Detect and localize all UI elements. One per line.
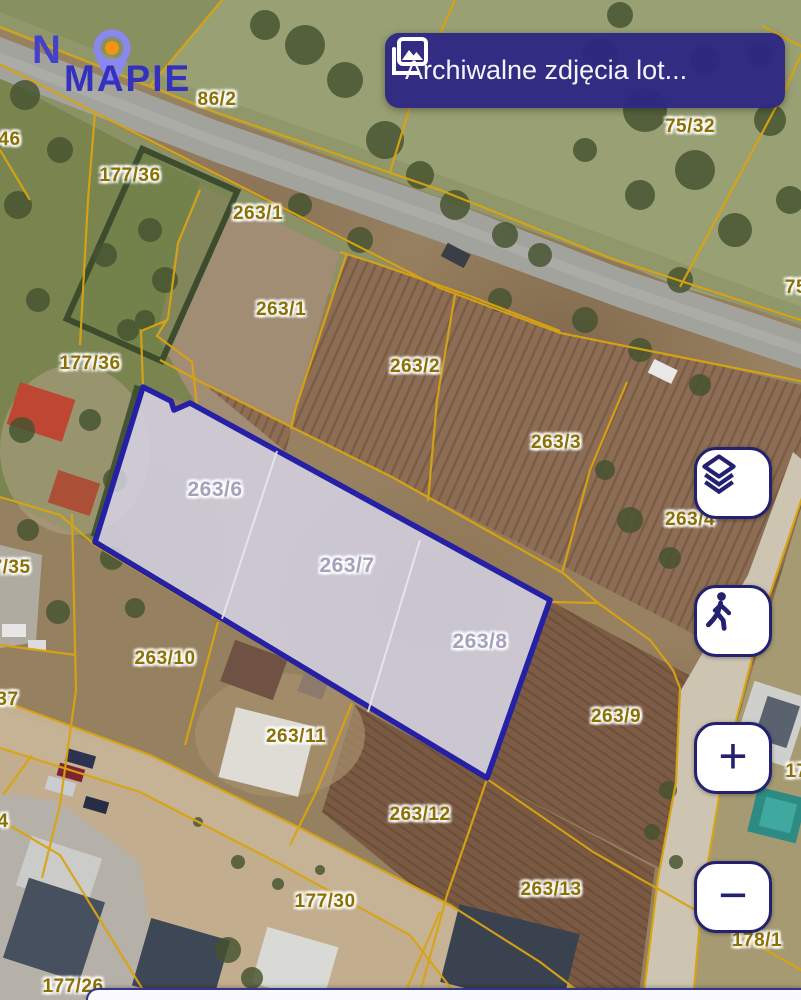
map-app: 86/2 75/32 177/46 177/36 263/1 263/1 75 … (0, 0, 801, 1000)
parcel-label: 75 (785, 277, 801, 299)
minus-icon: − (718, 870, 747, 920)
selected-parcel-label: 263/6 (187, 478, 242, 502)
photo-stack-icon (385, 33, 433, 81)
logo-word-na: N (32, 28, 61, 73)
archival-photos-label: Archiwalne zdjęcia lot... (405, 55, 687, 86)
parcel-label: 263/12 (389, 804, 450, 826)
archival-photos-button[interactable]: Archiwalne zdjęcia lot... (385, 33, 785, 108)
parcel-label: 263/9 (591, 706, 641, 728)
parcel-label: 177/34 (0, 811, 9, 833)
plus-icon: + (718, 731, 747, 781)
selected-parcel-label: 263/8 (452, 630, 507, 654)
parcel-label: 178/1 (732, 930, 782, 952)
parcel-label: 263/11 (266, 726, 326, 748)
parcel-label: 263/13 (520, 879, 581, 901)
parcel-label: 75/32 (665, 116, 715, 138)
parcel-label: 263/1 (233, 203, 283, 225)
pedestrian-icon (697, 588, 739, 632)
parcel-label: 263/2 (390, 356, 440, 378)
bottom-sheet[interactable] (86, 988, 801, 1000)
parcel-label: 177 (785, 761, 801, 783)
parcel-label: 263/3 (531, 432, 581, 454)
app-logo[interactable]: N MAPIE (28, 22, 208, 102)
logo-word-mapie: MAPIE (64, 58, 191, 100)
parcel-label: 263/1 (256, 299, 306, 321)
parcel-label: 177/35 (0, 557, 31, 579)
street-view-button[interactable] (694, 585, 772, 657)
parcel-label: 263/10 (134, 648, 195, 670)
parcel-label: 177/36 (59, 353, 120, 375)
selected-parcel-label: 263/7 (319, 554, 374, 578)
parcel-label: 177/36 (99, 165, 160, 187)
parcel-label: 177/37 (0, 689, 19, 711)
zoom-out-button[interactable]: − (694, 861, 772, 933)
map-canvas[interactable] (0, 0, 801, 1000)
parcel-label: 177/30 (294, 891, 355, 913)
zoom-in-button[interactable]: + (694, 722, 772, 794)
parcel-label: 177/46 (0, 129, 21, 151)
layers-icon (697, 450, 741, 494)
layers-button[interactable] (694, 447, 772, 519)
